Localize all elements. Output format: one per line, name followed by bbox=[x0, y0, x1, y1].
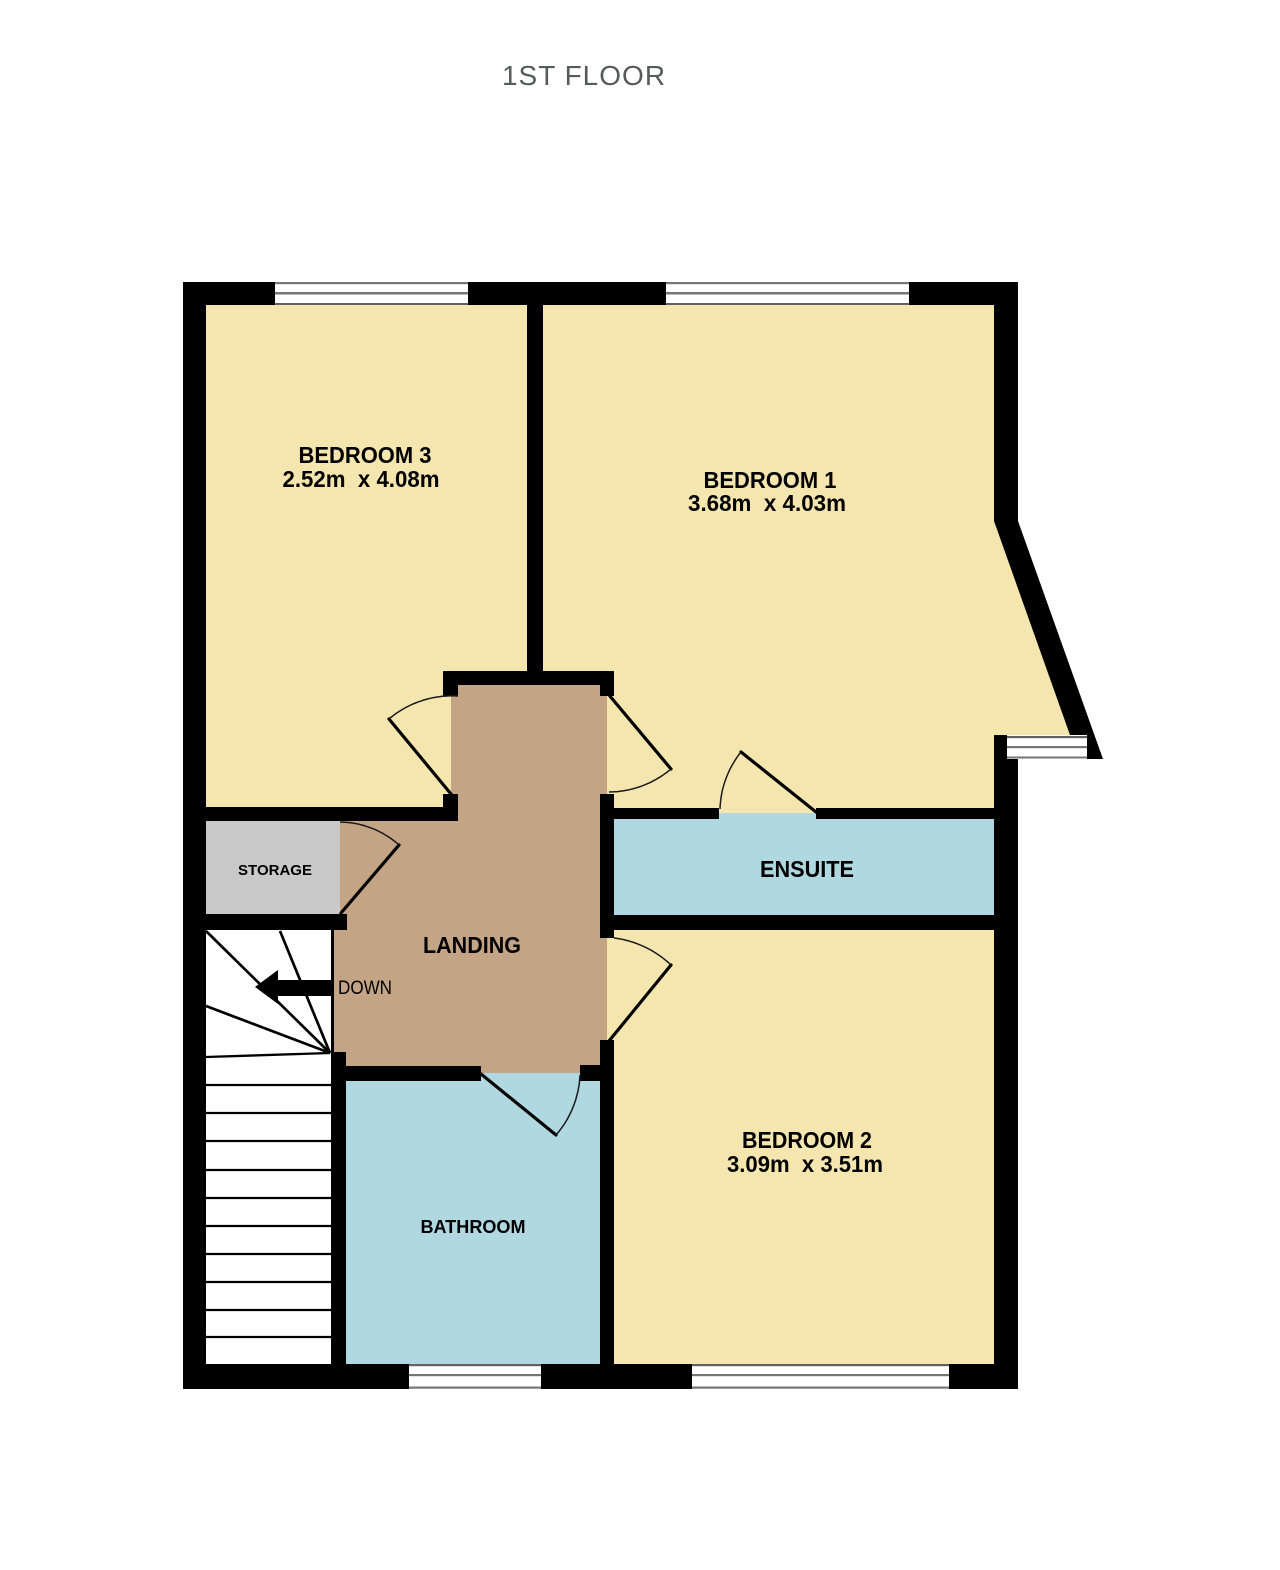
svg-text:BEDROOM 2: BEDROOM 2 bbox=[742, 1127, 872, 1153]
svg-text:DOWN: DOWN bbox=[338, 978, 392, 999]
svg-text:STORAGE: STORAGE bbox=[238, 862, 312, 879]
svg-text:BATHROOM: BATHROOM bbox=[421, 1217, 526, 1237]
svg-text:BEDROOM 3: BEDROOM 3 bbox=[299, 442, 432, 468]
svg-text:ENSUITE: ENSUITE bbox=[760, 856, 854, 882]
svg-text:2.52m x 4.08m: 2.52m x 4.08m bbox=[283, 466, 440, 492]
svg-text:3.09m x 3.51m: 3.09m x 3.51m bbox=[727, 1151, 883, 1177]
svg-text:LANDING: LANDING bbox=[423, 932, 521, 958]
svg-text:1ST FLOOR: 1ST FLOOR bbox=[502, 60, 666, 91]
svg-text:3.68m x 4.03m: 3.68m x 4.03m bbox=[688, 490, 846, 516]
